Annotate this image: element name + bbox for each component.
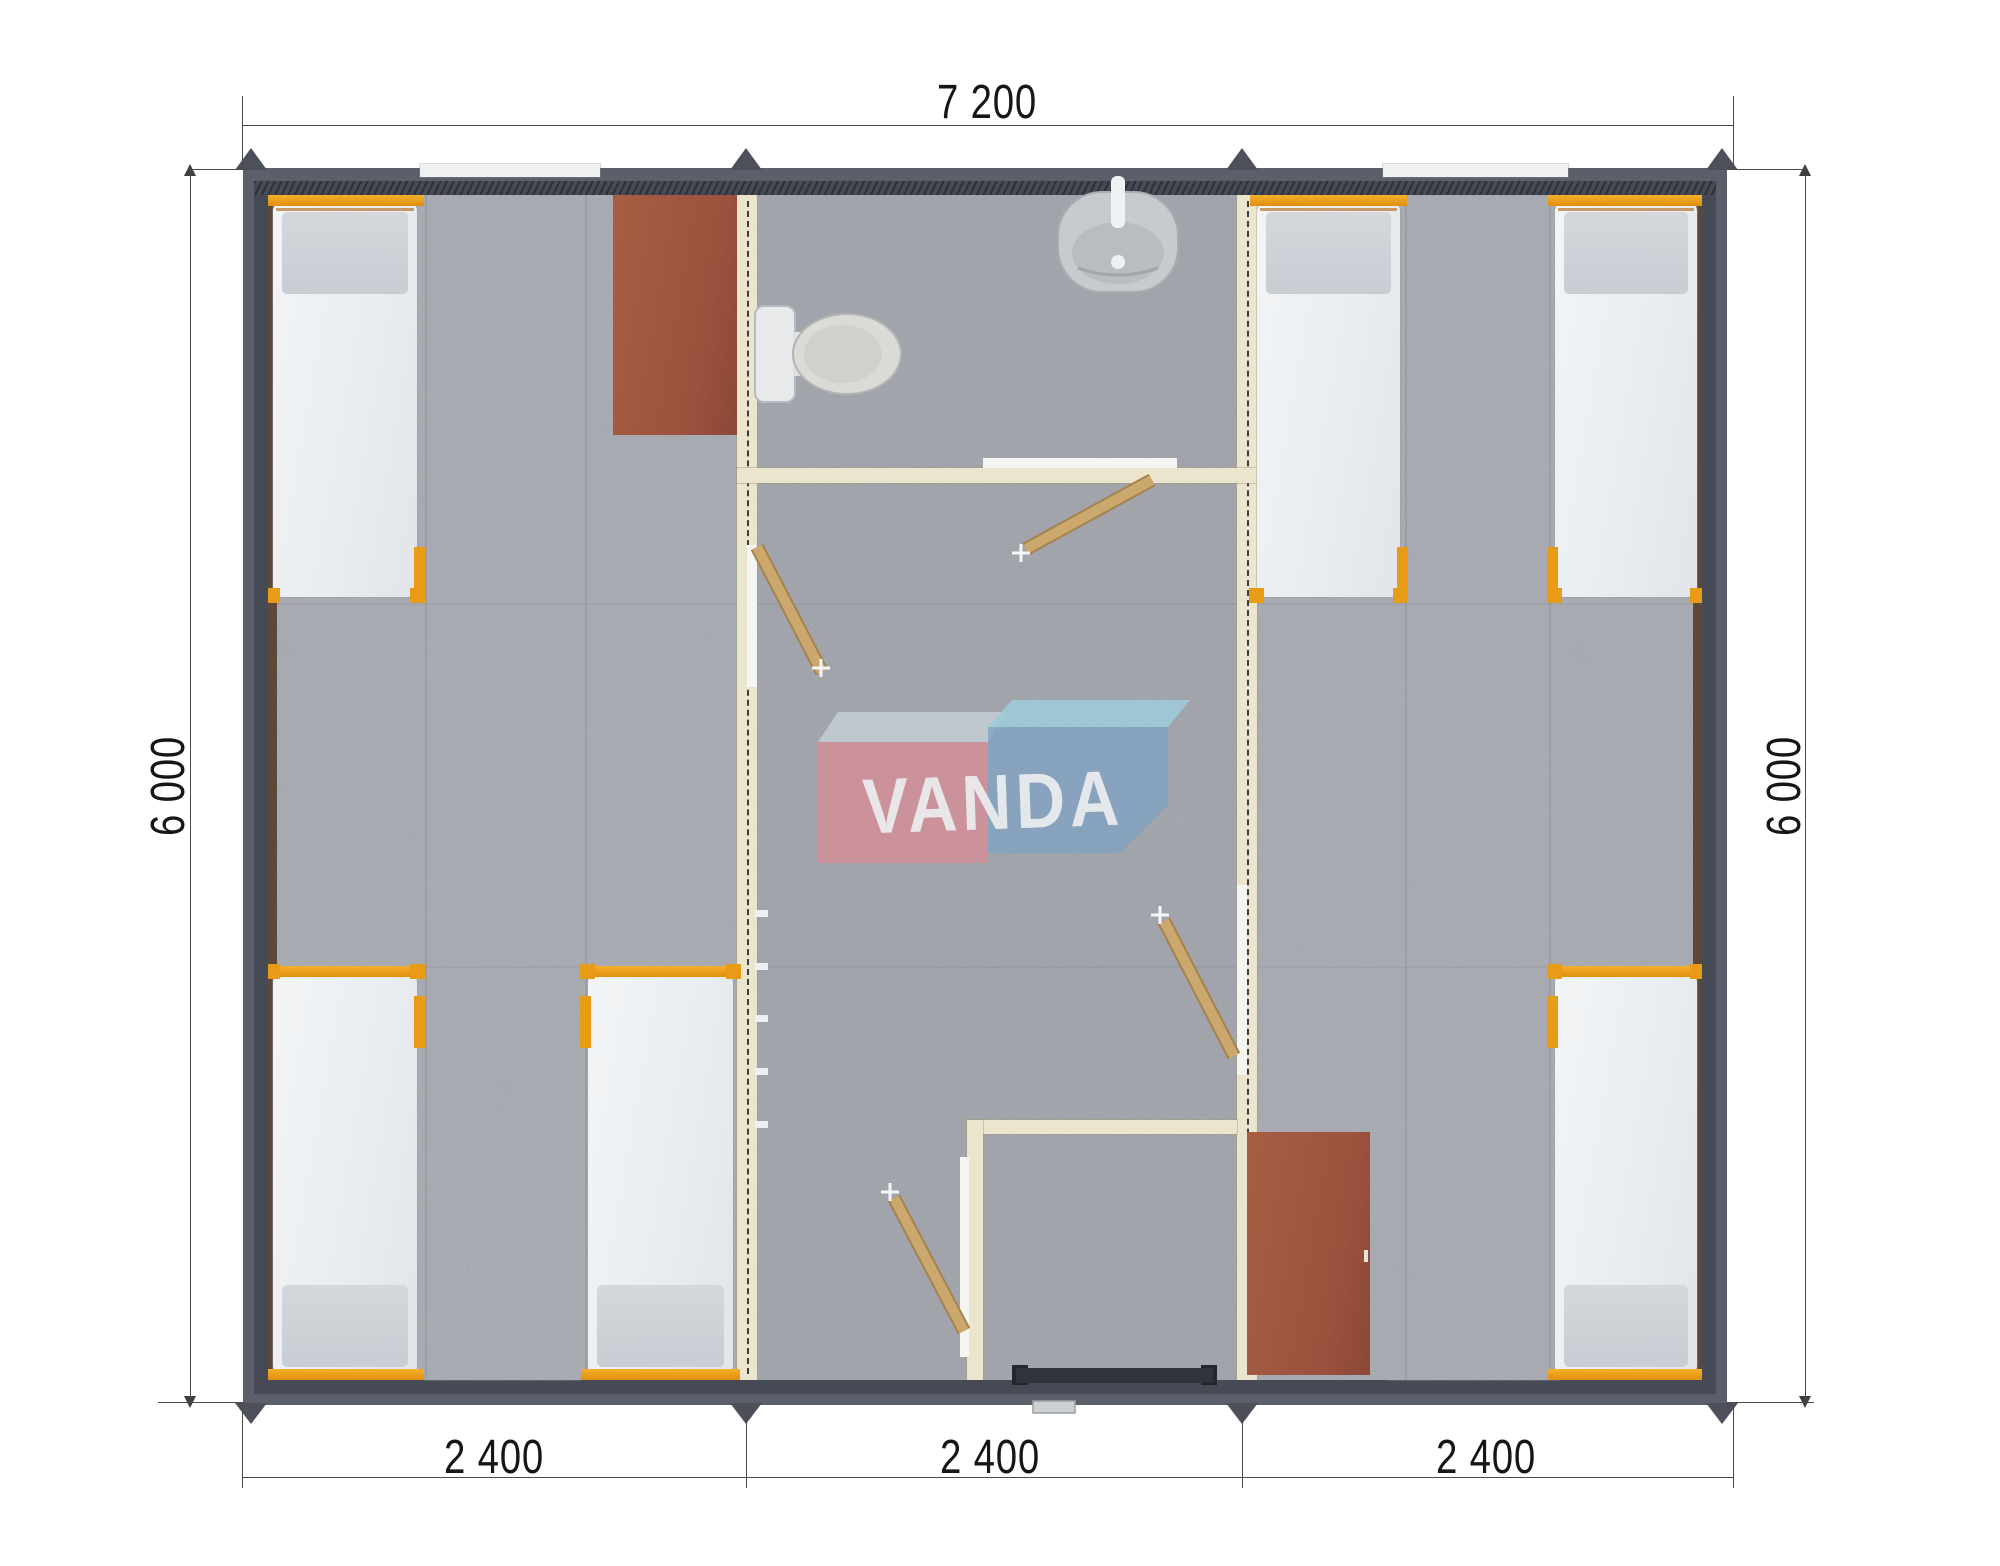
extension-line (1727, 169, 1807, 170)
dimension-label-bottom-3: 2 400 (1406, 1434, 1566, 1480)
floor-plan-canvas: VANDA (0, 0, 2000, 1566)
extension-line (1733, 1406, 1734, 1488)
extension-line (242, 1406, 243, 1488)
extension-line (158, 1402, 245, 1403)
toilet-icon (755, 306, 901, 402)
vestibule-door-leaf (881, 1183, 964, 1331)
bathroom-door-leaf (1012, 480, 1152, 562)
extension-line (1733, 96, 1734, 168)
extension-line (746, 1406, 747, 1488)
extension-line (188, 169, 245, 170)
extension-line (242, 96, 243, 168)
fixtures-overlay (0, 0, 2000, 1566)
entrance-door (1012, 1365, 1217, 1413)
module-tick-triangles-bottom (235, 1403, 1738, 1424)
dimension-label-right: 6 000 (1704, 748, 1864, 825)
dimension-label-bottom-2: 2 400 (910, 1434, 1070, 1480)
dimension-label-left: 6 000 (88, 748, 248, 825)
dimension-label-top: 7 200 (907, 76, 1067, 128)
dimension-arrows-vertical (184, 164, 1811, 1408)
extension-line (1727, 1402, 1814, 1403)
dimension-label-bottom-1: 2 400 (414, 1434, 574, 1480)
extension-line (1242, 1406, 1243, 1488)
right-room-door-leaf (1151, 906, 1234, 1056)
module-tick-triangles-top (235, 148, 1738, 170)
sink-icon (1058, 176, 1178, 292)
left-room-door-leaf (757, 547, 830, 677)
